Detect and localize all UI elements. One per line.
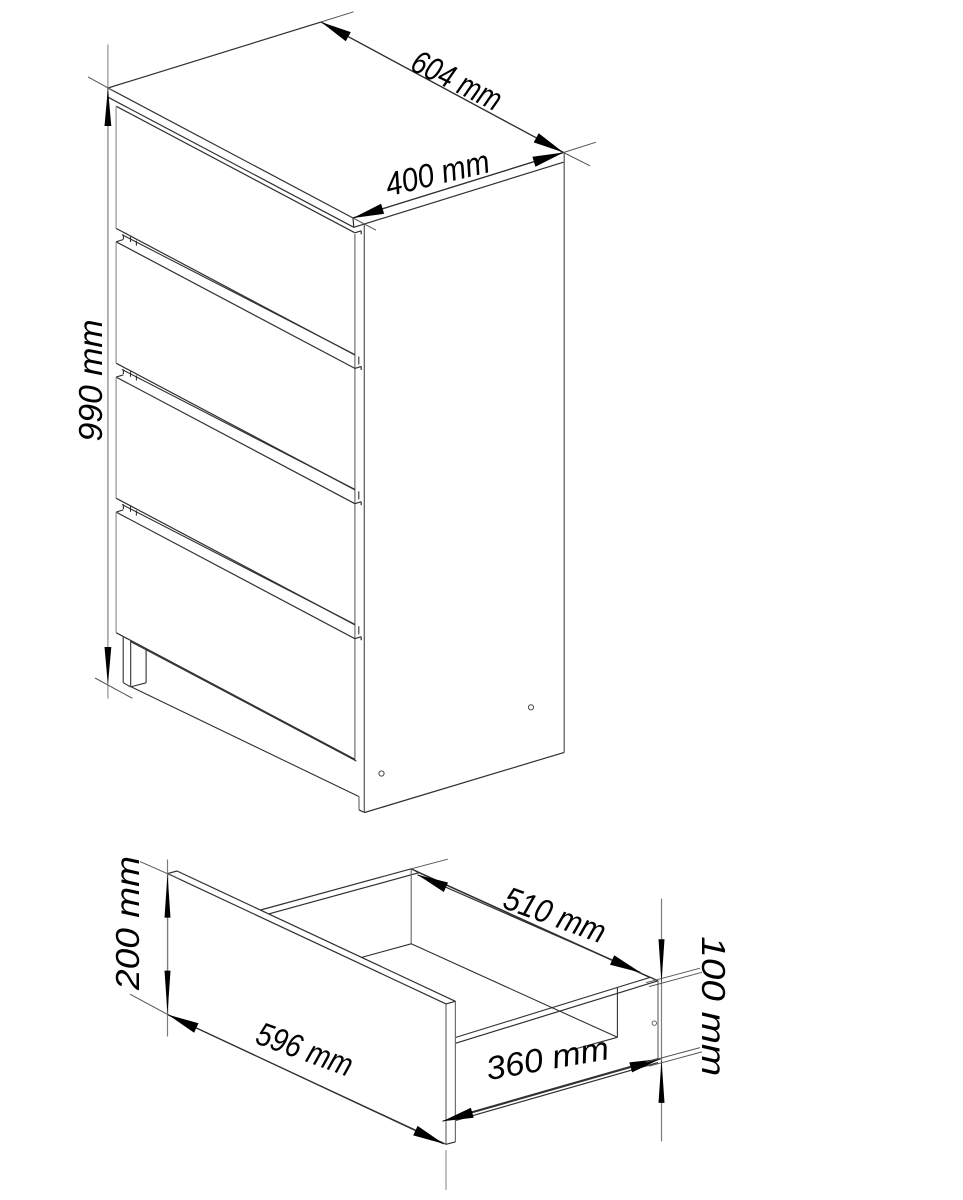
svg-text:990 mm: 990 mm <box>72 320 109 442</box>
svg-text:200 mm: 200 mm <box>109 856 146 991</box>
svg-text:100 mm: 100 mm <box>695 936 732 1076</box>
